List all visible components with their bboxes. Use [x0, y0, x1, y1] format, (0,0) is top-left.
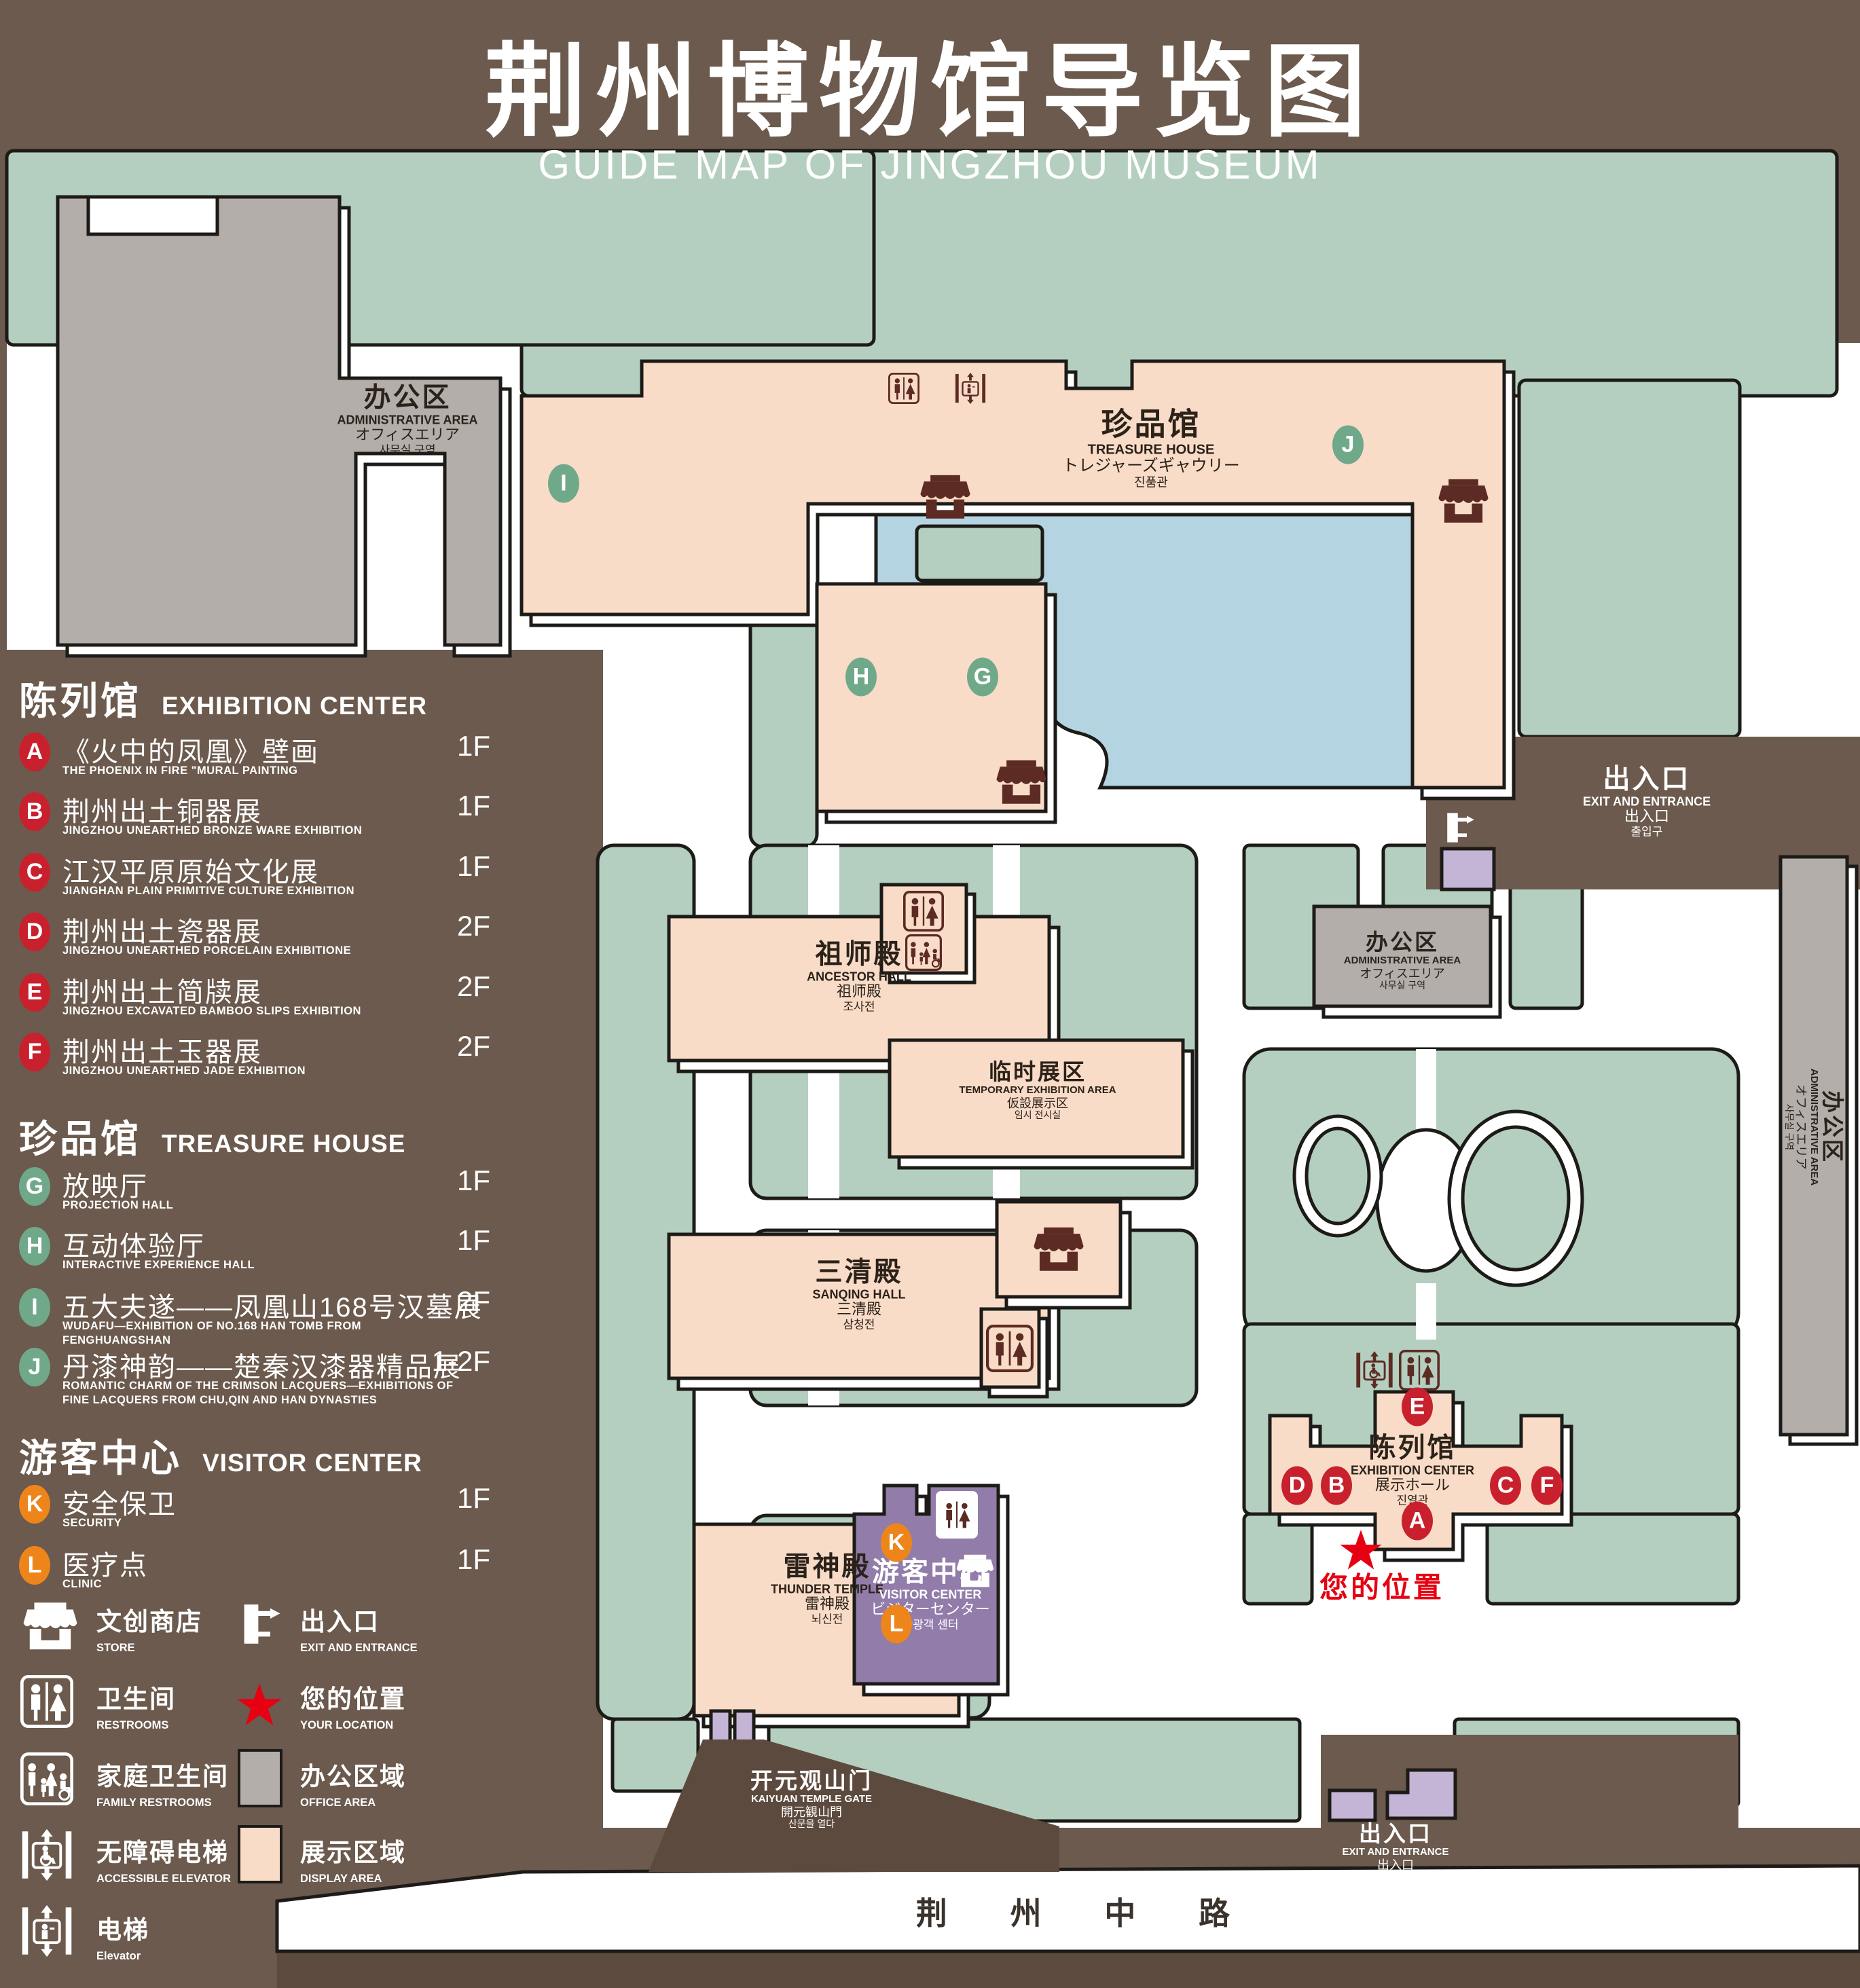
item-floor: 1F: [457, 730, 490, 762]
label-admin-far-east: 办公区 ADMINISTRATIVE AREA オフィスエリア 사무실 구역: [1783, 1069, 1844, 1186]
map-marker-a: A: [1402, 1502, 1433, 1541]
marker-f: F: [19, 1033, 50, 1071]
legend-location: 您的位置YOUR LOCATION: [300, 1678, 406, 1732]
map-marker-f: F: [1531, 1467, 1563, 1505]
marker-k: K: [19, 1485, 50, 1524]
legend-accessible-elevator: 无障碍电梯ACCESSIBLE ELEVATOR: [96, 1832, 231, 1885]
legend-item-c: C 江汉平原原始文化展 JIANGHAN PLAIN PRIMITIVE CUL…: [19, 850, 490, 904]
item-en: ROMANTIC CHARM OF THE CRIMSON LACQUERS—E…: [62, 1379, 470, 1407]
item-en: JINGZHOU UNEARTHED PORCELAIN EXHIBITIONE: [62, 944, 470, 958]
marker-j: J: [19, 1348, 50, 1386]
map-marker-c: C: [1490, 1467, 1521, 1505]
legend-item-e: E 荆州出土简牍展 JINGZHOU EXCAVATED BAMBOO SLIP…: [19, 970, 490, 1025]
section-title-en: TREASURE HOUSE: [162, 1130, 405, 1158]
pond-island: [917, 526, 1042, 581]
location-star-icon: [236, 1682, 282, 1729]
restroom-icon: [20, 1669, 73, 1734]
legend-section-treasure-house: 珍品馆 TREASURE HOUSE: [19, 1109, 405, 1164]
accessible-elevator-icon: [20, 1822, 73, 1888]
marker-c: C: [19, 853, 50, 891]
legend-store: 文创商店STORE: [96, 1601, 202, 1655]
item-floor: 2F: [457, 1285, 490, 1318]
item-en: INTERACTIVE EXPERIENCE HALL: [62, 1258, 470, 1272]
label-admin-northwest: 办公区 ADMINISTRATIVE AREA オフィスエリア 사무실 구역: [338, 383, 478, 457]
label-your-location: 您的位置: [1319, 1565, 1444, 1606]
legend-item-l: L 医疗点 CLINIC 1F: [19, 1543, 490, 1598]
legend-item-f: F 荆州出土玉器展 JINGZHOU UNEARTHED JADE EXHIBI…: [19, 1030, 490, 1084]
legend-office-area: 办公区域OFFICE AREA: [300, 1756, 406, 1809]
label-exit-northeast: 出入口 EXIT AND ENTRANCE 出入口 출입구: [1583, 765, 1711, 839]
map-marker-g: G: [967, 658, 998, 697]
item-en: JINGZHOU UNEARTHED JADE EXHIBITION: [62, 1064, 470, 1078]
marker-l: L: [19, 1546, 50, 1585]
section-title-en: EXHIBITION CENTER: [162, 692, 427, 720]
item-floor: 1F: [457, 1224, 490, 1257]
display-area-swatch: [238, 1825, 282, 1883]
legend-item-g: G 放映厅 PROJECTION HALL 1F: [19, 1164, 490, 1219]
section-title-zh: 游客中心: [19, 1428, 182, 1483]
label-kaiyuan-gate: 开元观山门 KAIYUAN TEMPLE GATE 開元観山門 산문을 열다: [750, 1769, 873, 1830]
marker-b: B: [19, 792, 50, 831]
item-en: THE PHOENIX IN FIRE "MURAL PAINTING: [62, 764, 470, 778]
building-restroom-block-south: [981, 1309, 1047, 1397]
legend-display-area: 展示区域DISPLAY AREA: [300, 1832, 406, 1885]
page-subtitle: GUIDE MAP OF JINGZHOU MUSEUM: [0, 141, 1860, 188]
label-exit-southeast: 出入口 EXIT AND ENTRANCE 出入口 출입구: [1343, 1822, 1449, 1883]
label-temporary-exhibition: 临时展区 TEMPORARY EXHIBITION AREA 仮設展示区 임시 …: [959, 1060, 1116, 1121]
map-marker-k: K: [881, 1524, 912, 1562]
section-title-en: VISITOR CENTER: [202, 1449, 422, 1477]
marker-e: E: [19, 973, 50, 1012]
item-floor: 2F: [457, 1030, 490, 1063]
legend-restroom: 卫生间RESTROOMS: [96, 1678, 176, 1732]
item-en: WUDAFU—EXHIBITION OF NO.168 HAN TOMB FRO…: [62, 1319, 470, 1348]
legend-section-exhibition-center: 陈列馆 EXHIBITION CENTER: [19, 671, 427, 726]
label-road: 荆 州 中 路: [916, 1889, 1257, 1934]
item-en: JIANGHAN PLAIN PRIMITIVE CULTURE EXHIBIT…: [62, 884, 470, 898]
label-admin-east: 办公区 ADMINISTRATIVE AREA オフィスエリア 사무실 구역: [1344, 930, 1461, 991]
label-sanqing-hall: 三清殿 SANQING HALL 三清殿 삼청전: [813, 1257, 906, 1331]
marker-a: A: [19, 733, 50, 771]
legend-item-d: D 荆州出土瓷器展 JINGZHOU UNEARTHED PORCELAIN E…: [19, 910, 490, 964]
label-exhibition-center: 陈列馆 EXHIBITION CENTER 展示ホール 진열관: [1351, 1433, 1474, 1507]
legend-item-i: I 五大夫遂——凤凰山168号汉墓展 WUDAFU—EXHIBITION OF …: [19, 1285, 490, 1340]
label-thunder-temple: 雷神殿 THUNDER TEMPLE 雷神殿 뇌신전: [771, 1552, 883, 1626]
legend-item-b: B 荆州出土铜器展 JINGZHOU UNEARTHED BRONZE WARE…: [19, 790, 490, 844]
legend-elevator: 电梯Elevator: [96, 1909, 149, 1963]
item-floor: 1F: [457, 1543, 490, 1576]
item-en: PROJECTION HALL: [62, 1198, 470, 1213]
legend-item-k: K 安全保卫 SECURITY 1F: [19, 1482, 490, 1536]
item-floor: 1F: [457, 1482, 490, 1515]
page-title: 荆州博物馆导览图: [0, 10, 1860, 157]
store-icon: [19, 1597, 81, 1654]
office-area-swatch: [238, 1749, 282, 1807]
item-en: JINGZHOU EXCAVATED BAMBOO SLIPS EXHIBITI…: [62, 1004, 470, 1018]
map-marker-e: E: [1402, 1388, 1433, 1426]
label-treasure-house: 珍品馆 TREASURE HOUSE トレジャーズギャウリー 진품관: [1062, 407, 1240, 490]
legend-section-visitor-center: 游客中心 VISITOR CENTER: [19, 1428, 422, 1483]
item-floor: 1-2F: [432, 1345, 490, 1378]
map-marker-d: D: [1281, 1467, 1313, 1505]
road-south-side: [277, 1953, 1860, 1988]
label-ancestor-hall: 祖师殿 ANCESTOR HALL 祖师殿 조사전: [807, 940, 911, 1014]
legend-item-j: J 丹漆神韵——楚秦汉漆器精品展 ROMANTIC CHARM OF THE C…: [19, 1345, 490, 1399]
section-title-zh: 陈列馆: [19, 671, 141, 726]
marker-d: D: [19, 913, 50, 951]
item-floor: 2F: [457, 910, 490, 942]
family-restroom-icon: [20, 1746, 73, 1811]
marker-h: H: [19, 1227, 50, 1266]
marker-g: G: [19, 1167, 50, 1206]
map-marker-j: J: [1332, 426, 1364, 464]
map-marker-b: B: [1321, 1467, 1352, 1505]
item-en: SECURITY: [62, 1516, 470, 1530]
item-floor: 1F: [457, 850, 490, 883]
map-marker-h: H: [845, 658, 877, 697]
exit-icon: [232, 1590, 287, 1658]
elevator-icon: [20, 1898, 73, 1964]
building-store-kiosk: [997, 1202, 1130, 1308]
legend-family-restroom: 家庭卫生间FAMILY RESTROOMS: [96, 1756, 229, 1809]
item-en: CLINIC: [62, 1577, 470, 1591]
map-marker-i: I: [548, 464, 579, 503]
exit-plaza-southeast: [1321, 1735, 1738, 1830]
legend-exit: 出入口EXIT AND ENTRANCE: [300, 1601, 418, 1655]
item-floor: 1F: [457, 790, 490, 822]
legend-item-h: H 互动体验厅 INTERACTIVE EXPERIENCE HALL 1F: [19, 1224, 490, 1278]
item-en: JINGZHOU UNEARTHED BRONZE WARE EXHIBITIO…: [62, 824, 470, 838]
item-floor: 2F: [457, 970, 490, 1003]
map-marker-l: L: [881, 1605, 912, 1644]
section-title-zh: 珍品馆: [19, 1109, 141, 1164]
item-floor: 1F: [457, 1164, 490, 1197]
legend-item-a: A 《火中的凤凰》壁画 THE PHOENIX IN FIRE "MURAL P…: [19, 730, 490, 784]
marker-i: I: [19, 1288, 50, 1327]
